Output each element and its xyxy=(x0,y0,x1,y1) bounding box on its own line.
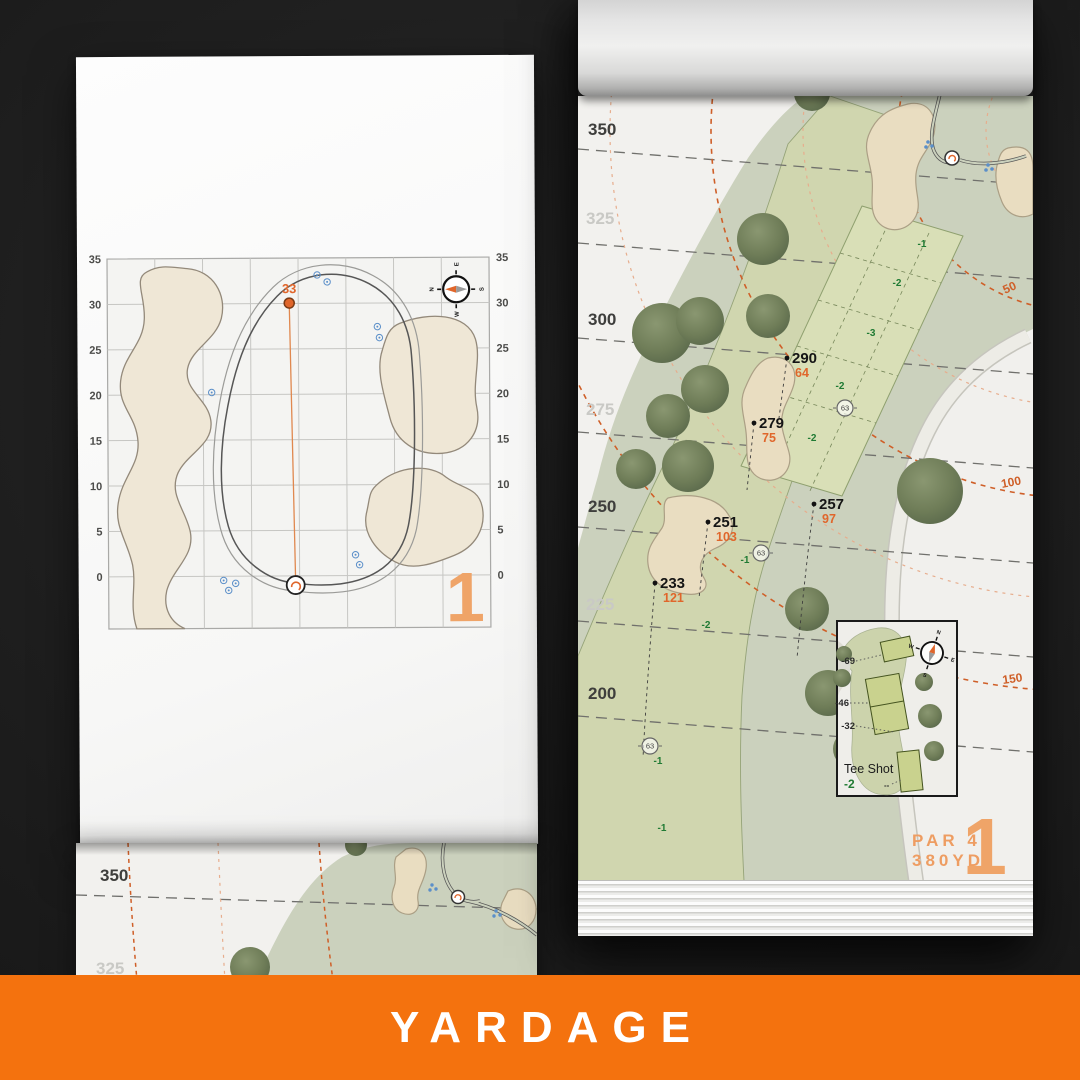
svg-text:250: 250 xyxy=(588,497,616,516)
tee-shot-inset: -69 -46 -32 -- Tee Shot -2 N E S W xyxy=(833,621,962,796)
svg-text:64: 64 xyxy=(795,366,809,380)
svg-text:-69: -69 xyxy=(841,656,855,667)
svg-text:0: 0 xyxy=(97,572,103,584)
svg-text:-1: -1 xyxy=(918,239,927,250)
green-entry-marker xyxy=(452,891,465,904)
svg-text:15: 15 xyxy=(90,436,102,448)
svg-text:63: 63 xyxy=(757,549,765,558)
svg-text:-2: -2 xyxy=(836,381,845,392)
yardage-book: 63 63 63 xyxy=(578,0,1033,936)
svg-text:5: 5 xyxy=(497,524,503,536)
flipped-page-curl xyxy=(578,0,1033,96)
svg-text:E: E xyxy=(455,262,461,266)
svg-text:63: 63 xyxy=(841,404,849,413)
svg-text:30: 30 xyxy=(89,299,101,311)
svg-text:63: 63 xyxy=(646,742,654,751)
green-detail-map: 33 N E xyxy=(76,55,538,846)
svg-text:10: 10 xyxy=(90,481,102,493)
svg-text:0: 0 xyxy=(498,570,504,582)
hole-map: 63 63 63 xyxy=(578,96,1033,881)
hole-number-right: 1 xyxy=(963,802,1008,881)
pin-marker xyxy=(284,298,294,308)
svg-text:-1: -1 xyxy=(658,823,667,834)
svg-text:20: 20 xyxy=(89,390,101,402)
svg-text:233: 233 xyxy=(660,575,685,592)
svg-text:75: 75 xyxy=(762,431,776,445)
svg-text:290: 290 xyxy=(792,350,817,367)
svg-text:300: 300 xyxy=(588,310,616,329)
svg-text:257: 257 xyxy=(819,496,844,513)
svg-text:20: 20 xyxy=(497,388,509,400)
under-page: 350 325 xyxy=(76,843,537,981)
svg-text:S: S xyxy=(480,287,486,291)
svg-text:-3: -3 xyxy=(867,328,876,339)
axis-labels-left: 35 30 25 20 15 10 5 0 xyxy=(89,254,103,584)
tee-shot-title: Tee Shot xyxy=(844,762,894,776)
svg-text:35: 35 xyxy=(496,252,508,264)
svg-text:30: 30 xyxy=(496,297,508,309)
banner-title: YARDAGE xyxy=(376,1003,704,1053)
svg-text:251: 251 xyxy=(713,514,738,531)
svg-text:25: 25 xyxy=(89,345,101,357)
svg-text:W: W xyxy=(455,311,461,317)
axis-labels-right: 35 30 25 20 15 10 5 0 xyxy=(496,252,510,582)
hole-number-left: 1 xyxy=(446,558,485,636)
svg-text:225: 225 xyxy=(586,595,614,614)
svg-text:97: 97 xyxy=(822,512,836,526)
svg-text:121: 121 xyxy=(663,591,684,605)
hole-page: 63 63 63 xyxy=(578,96,1033,936)
svg-text:103: 103 xyxy=(716,530,737,544)
svg-text:275: 275 xyxy=(586,400,614,419)
svg-text:10: 10 xyxy=(497,479,509,491)
svg-text:279: 279 xyxy=(759,415,784,432)
title-banner: YARDAGE xyxy=(0,975,1080,1080)
svg-text:-2: -2 xyxy=(893,278,902,289)
svg-text:-32: -32 xyxy=(841,721,855,732)
svg-text:-1: -1 xyxy=(741,555,750,566)
green-entry-marker xyxy=(287,576,305,594)
svg-text:N: N xyxy=(430,287,436,291)
svg-text:-1: -1 xyxy=(654,756,663,767)
svg-text:200: 200 xyxy=(588,684,616,703)
svg-text:15: 15 xyxy=(497,434,509,446)
svg-text:25: 25 xyxy=(496,343,508,355)
green-detail-page: 33 N E xyxy=(76,55,538,846)
pin-yardage-label: 33 xyxy=(282,281,297,296)
under-page-map: 350 325 xyxy=(76,843,537,981)
svg-text:-2: -2 xyxy=(702,620,711,631)
svg-text:-2: -2 xyxy=(808,433,817,444)
svg-text:5: 5 xyxy=(96,526,102,538)
back-tee-marker: -- xyxy=(884,781,890,790)
stacked-page-edges xyxy=(578,880,1033,936)
tee-shot-value: -2 xyxy=(844,777,855,791)
svg-text:350: 350 xyxy=(588,120,616,139)
distance-label: 350 xyxy=(100,866,128,885)
svg-text:150: 150 xyxy=(1001,670,1023,687)
svg-text:35: 35 xyxy=(89,254,101,266)
svg-text:-46: -46 xyxy=(835,698,849,709)
svg-text:325: 325 xyxy=(586,209,614,228)
